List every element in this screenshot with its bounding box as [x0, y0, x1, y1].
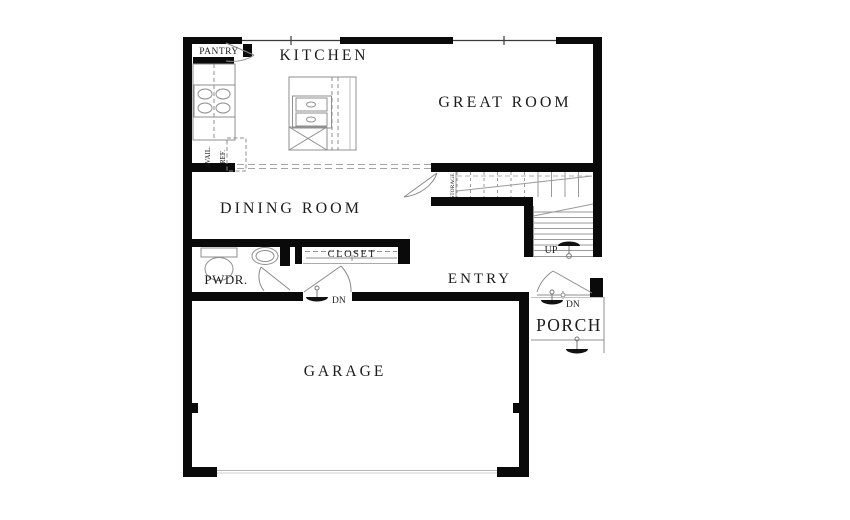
wall-frontdoor-jamb — [590, 278, 603, 297]
dn-label-front-door: DN — [566, 300, 580, 310]
wall-powder-closet-top — [183, 239, 410, 247]
room-label-storage: STORAGE — [450, 173, 456, 199]
wall-pilaster-left — [192, 403, 198, 413]
sink-basin-bottom — [296, 113, 327, 126]
sink-drain-bottom — [307, 117, 316, 122]
room-label-great-room: GREAT ROOM — [438, 94, 571, 111]
threshold-marker — [561, 293, 565, 297]
room-label-entry: ENTRY — [448, 271, 512, 287]
floor-plan-drawing: KITCHEN GREAT ROOM DINING ROOM ENTRY GAR… — [0, 0, 850, 520]
wall-storage-bottom — [431, 197, 533, 206]
wall-pilaster-right — [513, 403, 519, 413]
door-swing-powder — [259, 267, 290, 291]
plan-lines — [193, 64, 604, 473]
fixtures — [194, 85, 278, 281]
room-label-pantry: PANTRY — [199, 47, 239, 57]
dn-label-entry-garage: DN — [332, 296, 346, 306]
sink-basin-top — [296, 98, 327, 111]
wall-pantry-bottom — [193, 57, 234, 64]
room-label-dining-room: DINING ROOM — [220, 200, 362, 217]
room-label-closet: CLOSET — [328, 249, 377, 260]
sink-drain-top — [307, 102, 316, 107]
door-swing-storage — [404, 173, 437, 197]
appliance-label-avail: AVAIL. — [204, 146, 212, 168]
stairs-upper-flight — [456, 172, 592, 197]
wall-closet-right — [398, 239, 410, 264]
stair-break-line-lower — [534, 204, 594, 216]
island-sink-unit — [293, 96, 332, 128]
floor-plan-canvas: KITCHEN GREAT ROOM DINING ROOM ENTRY GAR… — [0, 0, 850, 520]
vanity-sink — [252, 248, 278, 265]
room-label-powder: PWDR. — [204, 272, 247, 287]
wall-left-exterior — [183, 37, 192, 467]
wall-garage-right — [519, 292, 529, 477]
wall-entry-garage-right — [352, 292, 529, 301]
wall-greatroom-bottom — [431, 163, 602, 172]
room-labels: KITCHEN GREAT ROOM DINING ROOM ENTRY GAR… — [199, 47, 602, 380]
door-swing-entry-garage — [304, 266, 351, 292]
room-label-garage: GARAGE — [304, 363, 387, 380]
room-label-porch: PORCH — [536, 315, 602, 335]
wall-powder-east — [280, 247, 290, 266]
stair-up-label: UP — [545, 245, 558, 256]
wall-garage-bottom-left — [183, 467, 217, 477]
dishwasher-x — [289, 127, 327, 150]
stairs-lower-flight — [534, 204, 594, 257]
porch-step-arrow — [566, 337, 588, 354]
up-arrow — [558, 242, 580, 259]
door-swing-front-door — [537, 271, 592, 293]
wall-stair-side — [524, 206, 534, 257]
wall-top-mid — [340, 37, 453, 44]
wall-entry-garage-left — [183, 292, 303, 301]
wall-right-exterior — [593, 37, 602, 257]
room-label-kitchen: KITCHEN — [279, 47, 368, 64]
wall-closet-left-stub — [295, 247, 302, 264]
appliance-label-ref: REF. — [219, 150, 227, 164]
